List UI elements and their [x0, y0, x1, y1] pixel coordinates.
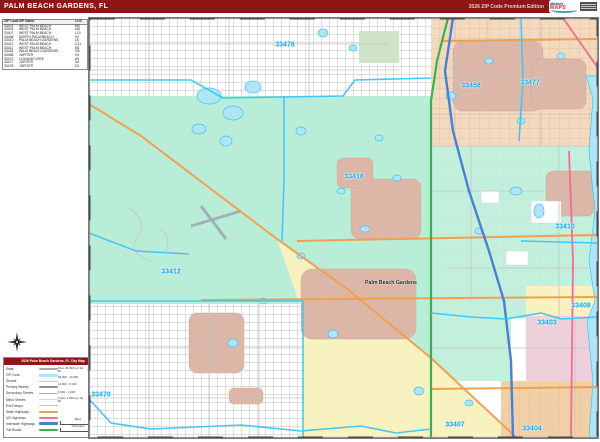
legend-swatch — [39, 386, 58, 388]
logo-side-panel — [580, 2, 597, 11]
legend-swatch — [39, 393, 58, 394]
logo-text-maps: MAPS — [550, 6, 579, 11]
title-bar: PALM BEACH GARDENS, FL 2026 ZIP Code Pre… — [0, 0, 550, 13]
legend-swatch — [39, 374, 58, 377]
region-yellow-coast — [526, 286, 598, 321]
edition-label: 2026 ZIP Code Premium Edition — [469, 4, 544, 10]
legend-swatch — [39, 417, 58, 419]
left-margin: ZIP Code ZIP Name LOC 33403 WEST PALM BE… — [0, 13, 88, 442]
compass-rose-icon — [6, 331, 28, 353]
zip-table-body: 33403 WEST PALM BEACH M9 33404 WEST PALM… — [3, 25, 87, 69]
legend-swatch — [39, 422, 58, 425]
legend-line-items: State ZIP Code Streets — [6, 366, 58, 433]
legend-swatch — [39, 368, 58, 370]
table-row: 33478 JUPITER D2 — [3, 65, 87, 69]
map-page: PALM BEACH GARDENS, FL 2026 ZIP Code Pre… — [0, 0, 600, 442]
legend-swatch — [39, 411, 58, 413]
map-drawing — [89, 18, 598, 438]
zip-code-table: ZIP Code ZIP Name LOC 33403 WEST PALM BE… — [2, 19, 88, 70]
legend-swatch — [39, 405, 58, 406]
legend-swatch — [39, 429, 58, 431]
region-park — [359, 31, 399, 63]
legend-swatch — [39, 399, 58, 400]
page-title: PALM BEACH GARDENS, FL — [4, 3, 108, 10]
legend-swatch — [39, 381, 58, 382]
legend-item: Toll Roads — [6, 427, 58, 433]
marketmaps-logo: Market MAPS — [549, 1, 599, 12]
map-canvas: 33478 33458 33477 33418 33410 33412 3340… — [88, 17, 599, 439]
